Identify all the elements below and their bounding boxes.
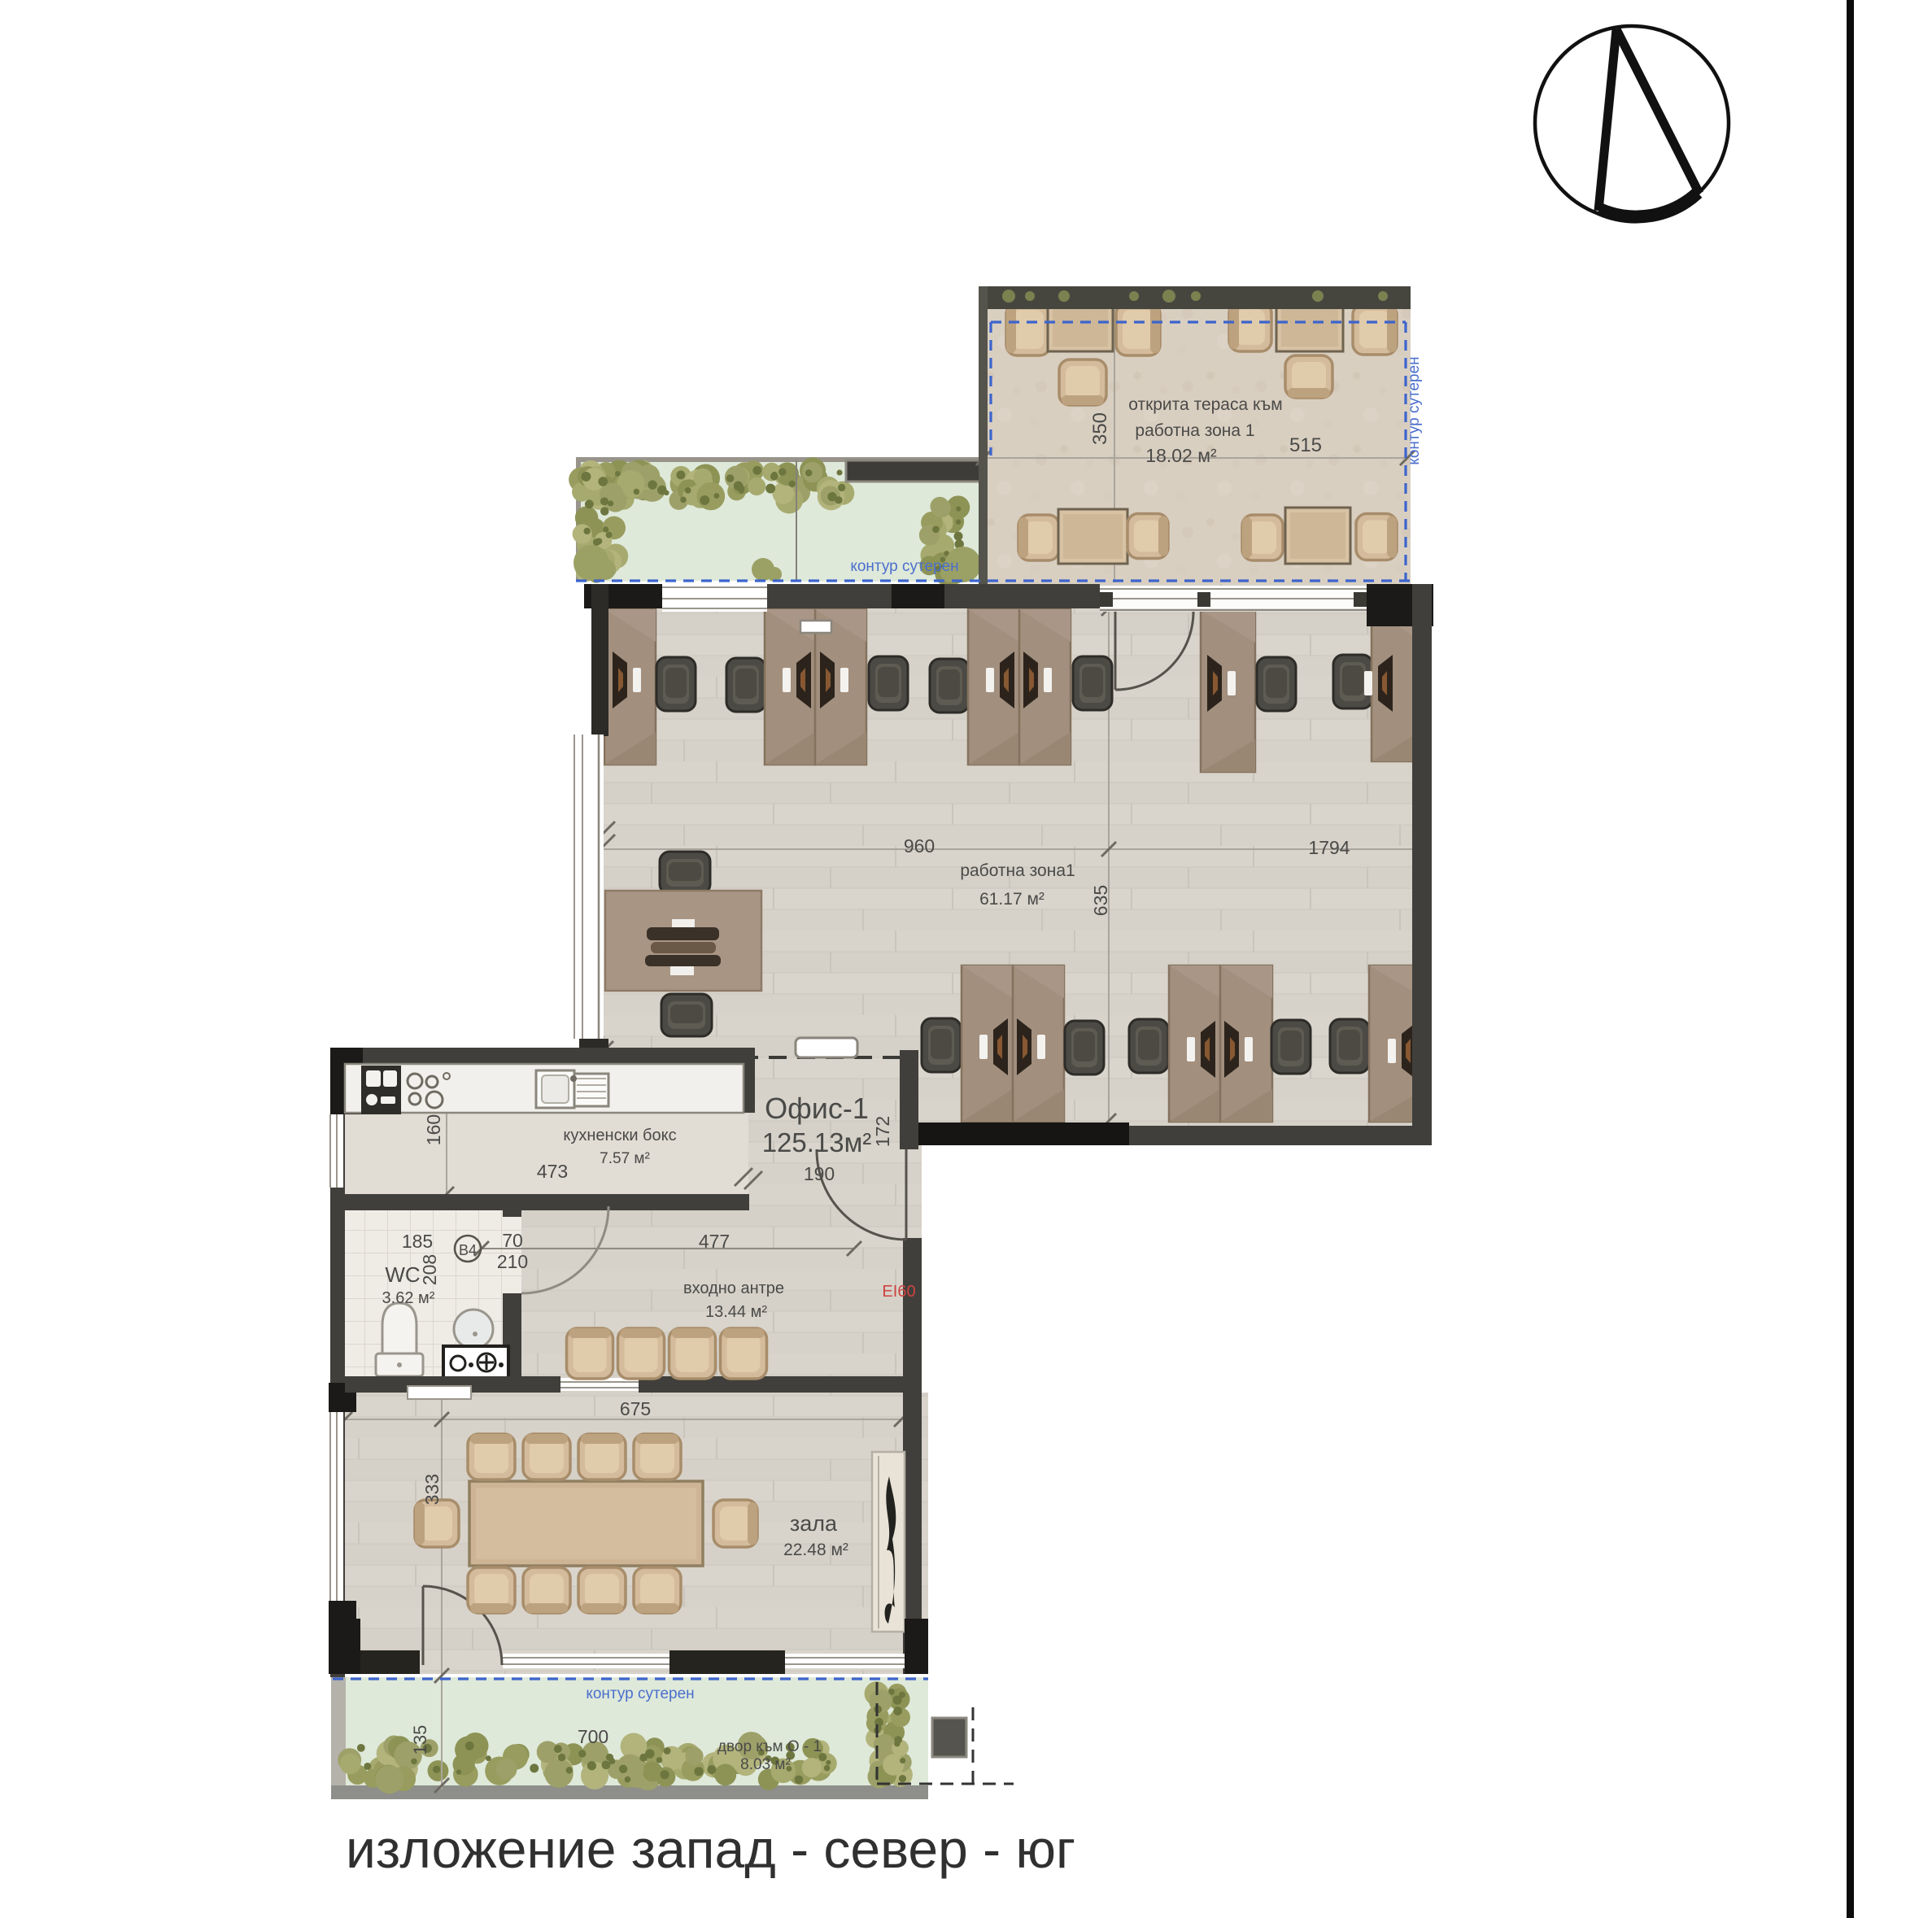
svg-text:675: 675 (620, 1398, 651, 1419)
svg-text:160: 160 (423, 1114, 444, 1145)
svg-text:185: 185 (402, 1231, 433, 1252)
svg-text:В4: В4 (459, 1242, 477, 1258)
svg-text:WC: WC (385, 1262, 420, 1287)
svg-text:18.02 м²: 18.02 м² (1145, 445, 1217, 466)
svg-text:135: 135 (410, 1725, 430, 1755)
svg-text:работна зона 1: работна зона 1 (1135, 421, 1254, 440)
svg-text:515: 515 (1289, 434, 1322, 456)
svg-text:контур сутерен: контур сутерен (850, 558, 958, 575)
svg-text:61.17 м²: 61.17 м² (979, 890, 1045, 909)
svg-text:контур сутерен: контур сутерен (1406, 356, 1423, 464)
svg-text:477: 477 (699, 1231, 730, 1252)
svg-text:172: 172 (872, 1116, 893, 1147)
svg-text:333: 333 (421, 1474, 443, 1505)
svg-text:EI60: EI60 (882, 1283, 915, 1301)
svg-text:двор към О - 1: двор към О - 1 (717, 1738, 822, 1755)
svg-text:входно антре: входно антре (683, 1279, 784, 1297)
svg-text:1794: 1794 (1308, 837, 1350, 858)
svg-text:контур сутерен: контур сутерен (586, 1685, 694, 1702)
svg-text:8.03 м²: 8.03 м² (740, 1756, 791, 1773)
svg-text:Офис-1: Офис-1 (765, 1092, 869, 1125)
svg-text:кухненски бокс: кухненски бокс (563, 1127, 676, 1144)
svg-text:125.13м²: 125.13м² (762, 1127, 872, 1157)
svg-text:635: 635 (1090, 885, 1111, 916)
svg-text:изложение запад - север - юг: изложение запад - север - юг (346, 1819, 1075, 1879)
svg-text:работна зона1: работна зона1 (960, 861, 1075, 880)
svg-text:зала: зала (790, 1511, 838, 1536)
svg-text:473: 473 (537, 1161, 568, 1182)
svg-text:13.44 м²: 13.44 м² (705, 1303, 767, 1321)
svg-text:960: 960 (904, 835, 935, 857)
svg-text:210: 210 (497, 1251, 528, 1272)
svg-text:3.62 м²: 3.62 м² (382, 1289, 435, 1307)
svg-text:350: 350 (1089, 412, 1111, 445)
svg-text:190: 190 (804, 1163, 835, 1184)
svg-text:открита тераса към: открита тераса към (1128, 395, 1283, 414)
svg-text:700: 700 (578, 1726, 608, 1747)
svg-text:22.48 м²: 22.48 м² (783, 1541, 848, 1559)
svg-text:7.57 м²: 7.57 м² (600, 1150, 650, 1167)
svg-text:70: 70 (502, 1230, 523, 1251)
svg-text:208: 208 (419, 1254, 440, 1285)
